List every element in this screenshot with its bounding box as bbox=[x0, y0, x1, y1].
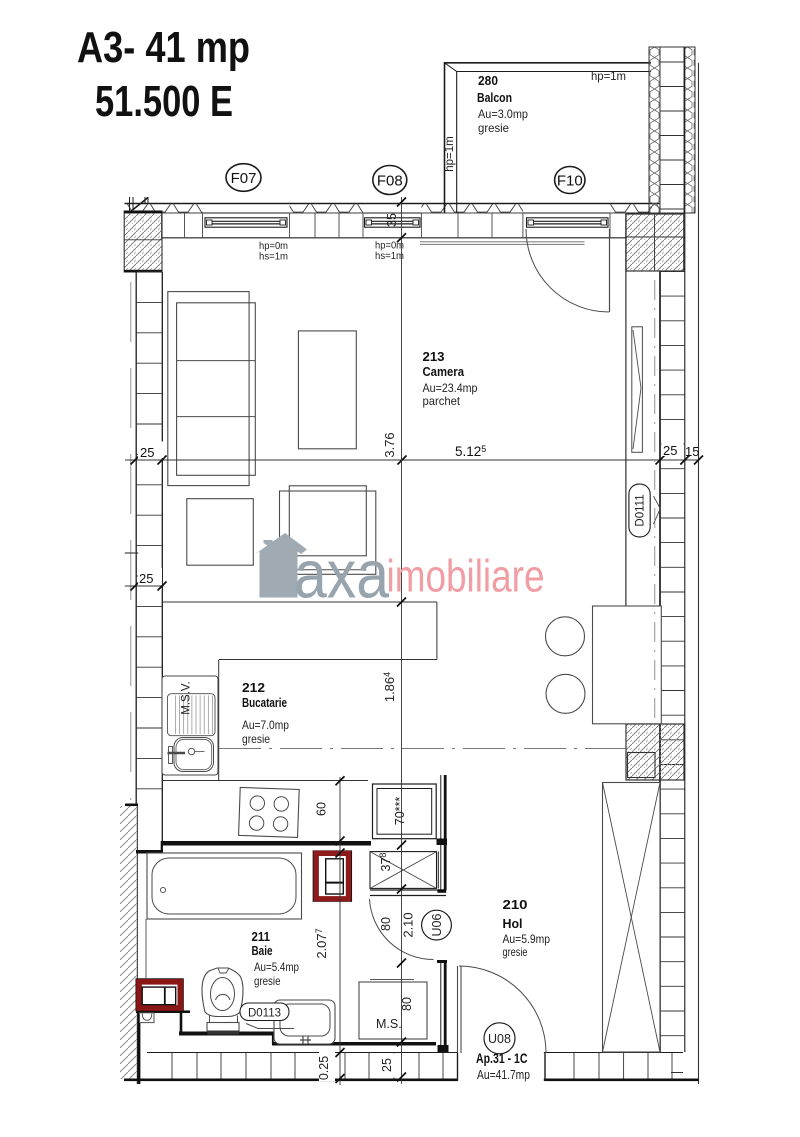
svg-text:80: 80 bbox=[400, 997, 414, 1011]
svg-text:2.10: 2.10 bbox=[401, 912, 416, 937]
svg-text:hs=1m: hs=1m bbox=[375, 250, 404, 262]
svg-text:213: 213 bbox=[423, 349, 445, 364]
svg-text:M.S.V.: M.S.V. bbox=[181, 681, 193, 714]
svg-text:3.76: 3.76 bbox=[382, 432, 397, 457]
svg-text:Camera: Camera bbox=[423, 364, 465, 379]
svg-text:M.S.: M.S. bbox=[376, 1017, 402, 1031]
svg-text:gresie: gresie bbox=[242, 732, 270, 746]
svg-text:15: 15 bbox=[685, 444, 699, 459]
svg-text:axa: axa bbox=[294, 537, 389, 613]
svg-text:0.25: 0.25 bbox=[317, 1056, 331, 1080]
svg-text:Baie: Baie bbox=[252, 943, 273, 958]
svg-text:Au=41.7mp: Au=41.7mp bbox=[477, 1068, 530, 1082]
svg-text:210: 210 bbox=[503, 897, 528, 912]
svg-text:gresie: gresie bbox=[478, 121, 509, 135]
svg-text:Balcon: Balcon bbox=[477, 90, 512, 105]
svg-text:parchet: parchet bbox=[423, 394, 461, 408]
svg-text:F07: F07 bbox=[231, 170, 257, 187]
svg-text:Bucatarie: Bucatarie bbox=[242, 695, 287, 710]
svg-text:U08: U08 bbox=[488, 1032, 511, 1046]
svg-text:Hol: Hol bbox=[503, 916, 523, 931]
svg-text:25: 25 bbox=[380, 1058, 394, 1072]
svg-text:hs=1m: hs=1m bbox=[259, 251, 288, 263]
svg-text:Au=5.4mp: Au=5.4mp bbox=[254, 960, 299, 974]
svg-text:hp=1m: hp=1m bbox=[444, 136, 456, 171]
svg-text:211: 211 bbox=[252, 929, 271, 944]
svg-text:A3- 41 mp: A3- 41 mp bbox=[77, 23, 250, 72]
svg-text:51.500 E: 51.500 E bbox=[95, 77, 233, 126]
svg-text:Au=5.9mp: Au=5.9mp bbox=[503, 932, 551, 946]
svg-text:D0113: D0113 bbox=[248, 1008, 281, 1020]
svg-text:gresie: gresie bbox=[254, 974, 281, 988]
svg-text:25: 25 bbox=[663, 443, 677, 458]
svg-text:80: 80 bbox=[379, 917, 393, 931]
svg-text:F08: F08 bbox=[377, 173, 403, 190]
svg-text:U06: U06 bbox=[430, 913, 444, 936]
svg-text:D0111: D0111 bbox=[635, 494, 647, 526]
svg-text:25: 25 bbox=[140, 445, 154, 460]
svg-text:Au=23.4mp: Au=23.4mp bbox=[423, 381, 478, 395]
svg-text:70***: 70*** bbox=[393, 797, 407, 826]
svg-text:Au=7.0mp: Au=7.0mp bbox=[242, 718, 289, 732]
svg-text:F10: F10 bbox=[557, 173, 583, 190]
svg-text:imobiliare: imobiliare bbox=[387, 551, 545, 602]
svg-text:25: 25 bbox=[139, 571, 153, 586]
svg-text:212: 212 bbox=[242, 680, 265, 695]
svg-text:35: 35 bbox=[385, 213, 399, 227]
svg-text:280: 280 bbox=[478, 73, 498, 88]
svg-text:Au=3.0mp: Au=3.0mp bbox=[478, 107, 528, 121]
svg-text:hp=1m: hp=1m bbox=[591, 69, 626, 83]
svg-text:60: 60 bbox=[315, 802, 329, 816]
svg-text:gresie: gresie bbox=[503, 945, 528, 959]
